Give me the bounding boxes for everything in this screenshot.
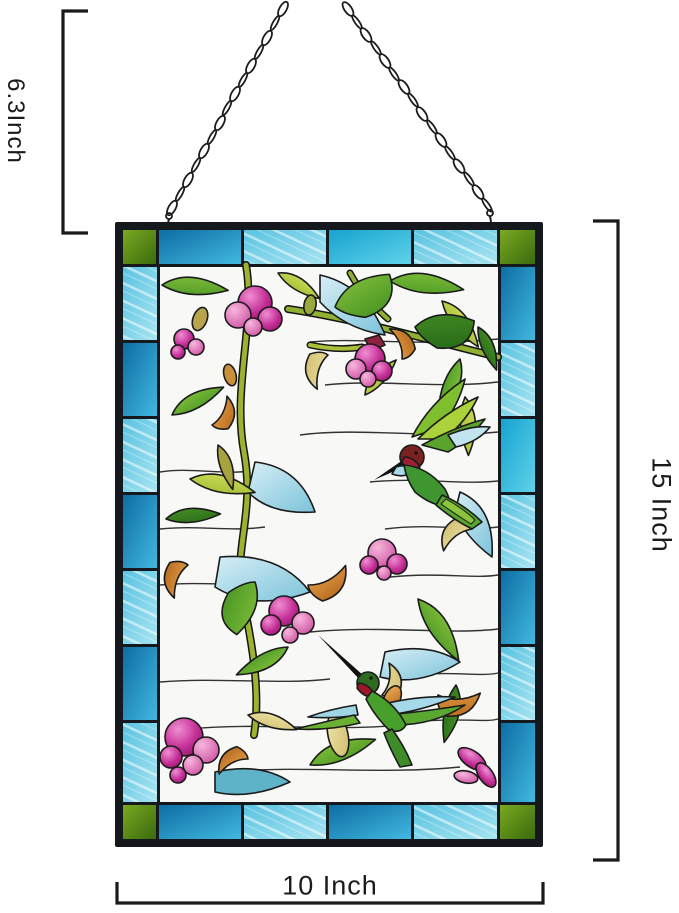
panel-height-label: 15 Inch bbox=[646, 457, 677, 553]
stained-glass-panel bbox=[115, 222, 543, 847]
hanging-chain-icon bbox=[165, 0, 493, 223]
chain-height-dimension-line bbox=[63, 11, 88, 233]
panel-width-label: 10 Inch bbox=[282, 871, 378, 902]
panel-illustration bbox=[0, 0, 679, 913]
chain-height-label: 6.3Inch bbox=[1, 78, 29, 164]
product-dimension-image: 6.3Inch 15 Inch 10 Inch bbox=[0, 0, 679, 913]
panel-height-dimension-line bbox=[593, 221, 618, 860]
